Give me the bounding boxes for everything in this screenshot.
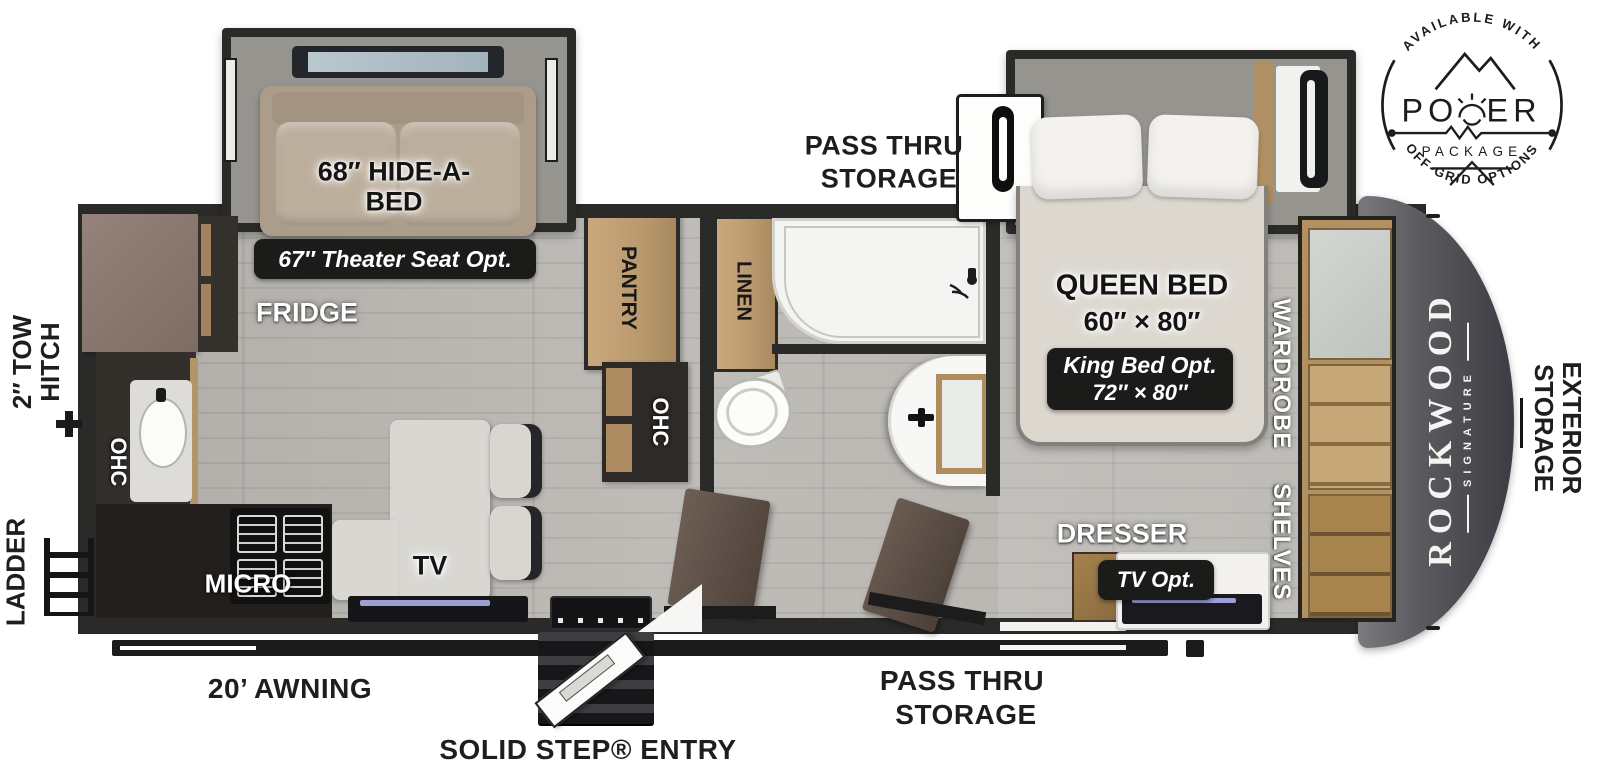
king-opt-line1: King Bed Opt. [1063, 351, 1216, 379]
sofa-back [272, 92, 524, 124]
entry-step-dots [558, 618, 644, 623]
linen-text: LINEN [733, 261, 755, 321]
bath-wall-right [986, 214, 1000, 496]
brand-logo: ROCKWOOD SIGNATURE [1422, 289, 1474, 566]
wardrobe-text: WARDROBE [1268, 299, 1295, 450]
bed-pillow-right [1147, 114, 1260, 200]
logo-rule-right [1467, 323, 1469, 361]
brand-name: ROCKWOOD [1422, 289, 1460, 566]
awning-bracket [1186, 640, 1204, 657]
badge-arc-top-text: AVAILABLE WITH [1399, 10, 1545, 54]
pass-thru-bottom-line1: PASS THRU [880, 665, 1044, 697]
kitchen-overhead-cabinet [82, 214, 198, 352]
king-bed-option-badge: King Bed Opt. 72″ × 80″ [1047, 348, 1233, 410]
exterior-storage-line2: STORAGE [1530, 362, 1558, 495]
queen-bed-label-line1: QUEEN BED [1056, 270, 1228, 303]
tv-option-badge: TV Opt. [1098, 560, 1214, 600]
exterior-storage-line1: EXTERIOR [1558, 362, 1586, 495]
floorplan: ROCKWOOD SIGNATURE EXTERIOR STORAGE 68″ … [0, 0, 1600, 774]
pantry-text: PANTRY [617, 246, 640, 330]
wardrobe-drawers [1308, 494, 1392, 618]
dresser-label: DRESSER [1057, 519, 1188, 550]
stove-grate [237, 515, 277, 553]
kitchen-ohc-label: OHC [105, 438, 131, 487]
power-word-right: ER [1487, 93, 1542, 129]
micro-label: MICRO [205, 569, 292, 600]
kitchen-faucet [156, 388, 166, 402]
pass-thru-top-line2: STORAGE [821, 164, 958, 195]
kitchen-sink [139, 398, 187, 468]
vanity-faucet-stem [918, 408, 925, 427]
tv-screen-glint [360, 600, 490, 606]
theater-seat-option-text: 67″ Theater Seat Opt. [278, 246, 511, 273]
tv-label: TV [413, 551, 448, 582]
wardrobe-shelf-section [1308, 364, 1392, 490]
exterior-storage-door-mark [1520, 398, 1523, 448]
pass-thru-bottom-line2: STORAGE [895, 699, 1036, 731]
vanity-mirror [936, 374, 988, 474]
fridge-trim [201, 224, 211, 344]
tv-opt-text: TV Opt. [1117, 567, 1195, 593]
brand-series: SIGNATURE [1462, 369, 1474, 487]
ladder-label: LADDER [1, 518, 32, 626]
bed-slide-window-glass [1307, 80, 1315, 178]
hide-a-bed-label-line1: 68″ HIDE-A- [318, 157, 470, 188]
ladder-icon [44, 538, 94, 616]
awning-stripe-right [1000, 645, 1126, 650]
svg-text:AVAILABLE WITH: AVAILABLE WITH [1399, 10, 1545, 54]
tow-hitch-icon-vertical [65, 411, 73, 437]
wardrobe-upper-glass [1308, 228, 1392, 360]
mountain-icon [1436, 54, 1515, 89]
hall-ohc-drawers [606, 368, 632, 474]
bottom-wall-window [1000, 622, 1126, 631]
logo-rule-left [1467, 495, 1469, 533]
exterior-storage-label: EXTERIOR STORAGE [1530, 362, 1586, 495]
king-opt-line2: 72″ × 80″ [1092, 379, 1187, 407]
solid-step-entry-label: SOLID STEP® ENTRY [439, 734, 736, 766]
linen-label: LINEN [732, 261, 755, 321]
kitchen-ohc-text: OHC [106, 438, 131, 487]
cap-screw-top [1426, 214, 1440, 218]
theater-seat-option-badge: 67″ Theater Seat Opt. [254, 239, 536, 279]
bed-pillow-left [1031, 114, 1144, 200]
dinette-chair-bottom [490, 506, 542, 580]
power-word-left: PO [1401, 93, 1458, 129]
hall-ohc-label: OHC [647, 398, 673, 447]
cap-screw-bottom [1426, 626, 1440, 630]
tow-hitch-line2: HITCH [36, 315, 64, 409]
ladder-text: LADDER [1, 518, 31, 626]
shower-head-icon [938, 258, 980, 304]
hall-ohc-text: OHC [648, 398, 673, 447]
pass-thru-handle-slot [999, 117, 1007, 181]
fridge-label: FRIDGE [256, 298, 358, 329]
tow-hitch-label: 2″ TOW HITCH [8, 315, 64, 409]
sun-icon [1458, 94, 1485, 125]
shelves-label: SHELVES [1267, 483, 1295, 600]
shelves-text: SHELVES [1268, 483, 1295, 600]
slideout-sidewindow-right [545, 58, 558, 162]
wardrobe-label: WARDROBE [1267, 299, 1295, 450]
bath-wall-left [700, 214, 714, 500]
awning-label: 20’ AWNING [208, 673, 372, 705]
shower-curb [772, 344, 1000, 354]
dinette-chair-top [490, 424, 542, 498]
stove-grate [283, 515, 323, 553]
pass-thru-top-line1: PASS THRU [805, 131, 964, 162]
slideout-sidewindow-left [224, 58, 237, 162]
hide-a-bed-label-line2: BED [365, 187, 422, 218]
slideout-window-glass [308, 52, 488, 72]
tow-hitch-line1: 2″ TOW [8, 315, 36, 409]
entry-step-rail [550, 596, 652, 630]
package-text: PACKAGE [1422, 144, 1523, 159]
awning-stripe-left [120, 646, 256, 650]
pantry-label: PANTRY [616, 246, 640, 330]
dinette-table-wing [332, 520, 398, 600]
power-package-badge: AVAILABLE WITH PO ER PACKAGE OFF-GRID OP… [1372, 4, 1572, 208]
queen-bed-label-line2: 60″ × 80″ [1084, 307, 1201, 338]
